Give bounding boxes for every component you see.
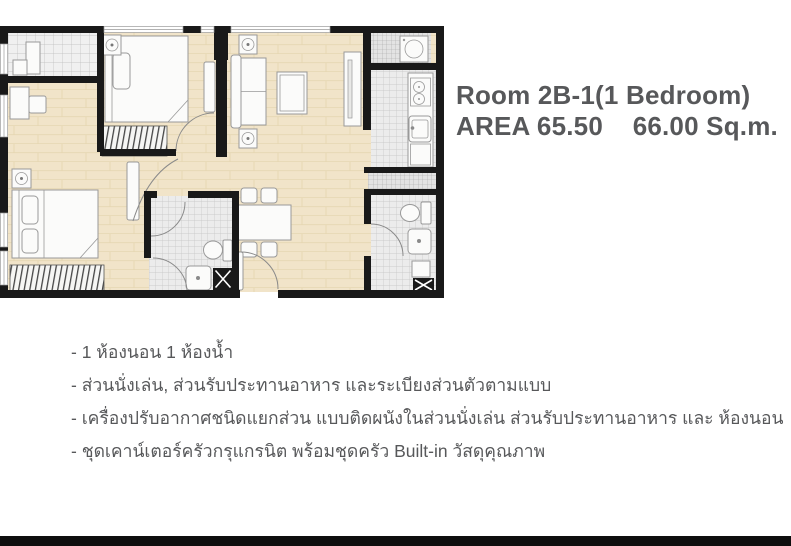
feature-item: - ส่วนนั่งเล่น, ส่วนรับประทานอาหาร และระ… [71,369,783,402]
footer-bar [0,536,791,546]
title-block: Room 2B-1(1 Bedroom) AREA 65.50 66.00 Sq… [456,80,778,142]
shaft-x-icon [413,278,434,292]
window-icon [231,27,330,33]
kitchen [371,68,436,170]
bath-cabinet [412,261,430,277]
pillow-icon [22,229,38,253]
feature-list: - 1 ห้องนอน 1 ห้องน้ำ - ส่วนนั่งเล่น, ส่… [71,336,783,468]
window-icon [1,44,8,74]
nightstand-lamp-icon [103,35,121,55]
floor-plan [0,0,452,306]
balcony [8,32,98,80]
bathroom-2 [371,195,436,292]
service-shaft [368,172,436,190]
window-icon [201,27,214,33]
washing-machine-icon [400,36,428,62]
double-bed-icon [12,190,98,258]
window-icon [104,27,183,33]
plant-icon [239,35,257,54]
tv-console-icon [344,52,361,126]
bathroom-1 [149,196,234,292]
pillow-icon [113,53,130,89]
brochure-page: Room 2B-1(1 Bedroom) AREA 65.50 66.00 Sq… [0,0,791,546]
kitchen-sink-icon [409,116,431,142]
window-icon [1,251,8,285]
sink-icon [408,229,431,254]
dining-table-icon [237,205,291,240]
toilet-icon [204,240,233,261]
wardrobe-icon [10,265,104,292]
feature-item: - เครื่องปรับอากาศชนิดแยกส่วน แบบติดผนัง… [71,402,783,435]
chair-icon [261,242,277,257]
chair-icon [241,188,257,203]
shaft-x-icon [213,268,233,290]
pillow-icon [22,196,38,224]
plant-icon [239,129,257,148]
feature-item: - 1 ห้องนอน 1 ห้องน้ำ [71,336,783,369]
sink-icon [186,266,211,290]
window-icon [1,213,8,247]
area-text: AREA 65.50 66.00 Sq.m. [456,111,778,142]
window-icon [1,95,8,137]
wall-shelf-icon [204,62,215,112]
door-leaf-icon [127,162,139,220]
feature-item: - ชุดเคาน์เตอร์ครัวกรุแกรนิต พร้อมชุดครั… [71,435,783,468]
laundry-balcony [371,32,431,65]
page-title: Room 2B-1(1 Bedroom) [456,80,778,111]
coffee-table-icon [277,72,307,114]
sofa-icon [231,55,266,128]
chair-icon [261,188,277,203]
nightstand-lamp-icon [12,169,31,188]
